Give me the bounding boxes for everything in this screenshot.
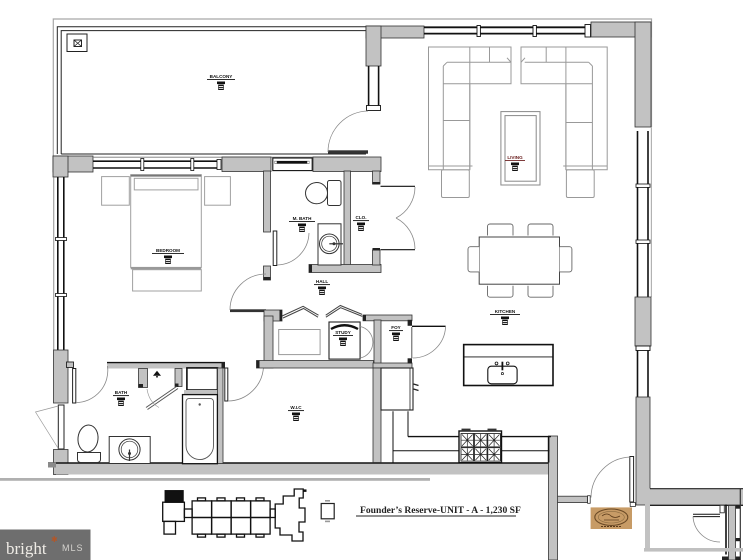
svg-text:BALCONY: BALCONY <box>210 74 233 79</box>
svg-text:Founder’s Reserve-UNIT - A: Founder’s Reserve-UNIT - A - 1,230 SF <box>360 505 521 516</box>
svg-text:✱: ✱ <box>51 535 58 544</box>
svg-text:CLO.: CLO. <box>356 215 367 220</box>
svg-text:BATH: BATH <box>115 390 128 395</box>
svg-text:LIVING: LIVING <box>507 155 523 160</box>
svg-text:FOY: FOY <box>391 325 400 330</box>
svg-text:W.I.C: W.I.C <box>290 405 302 410</box>
svg-text:MLS: MLS <box>62 543 84 553</box>
svg-text:BEDROOM: BEDROOM <box>156 248 180 253</box>
svg-text:KITCHEN: KITCHEN <box>495 309 516 314</box>
svg-text:bright: bright <box>6 539 47 558</box>
svg-text:M. BATH: M. BATH <box>293 216 312 221</box>
svg-text:STUDY: STUDY <box>335 330 351 335</box>
svg-text:HALL: HALL <box>316 279 328 284</box>
